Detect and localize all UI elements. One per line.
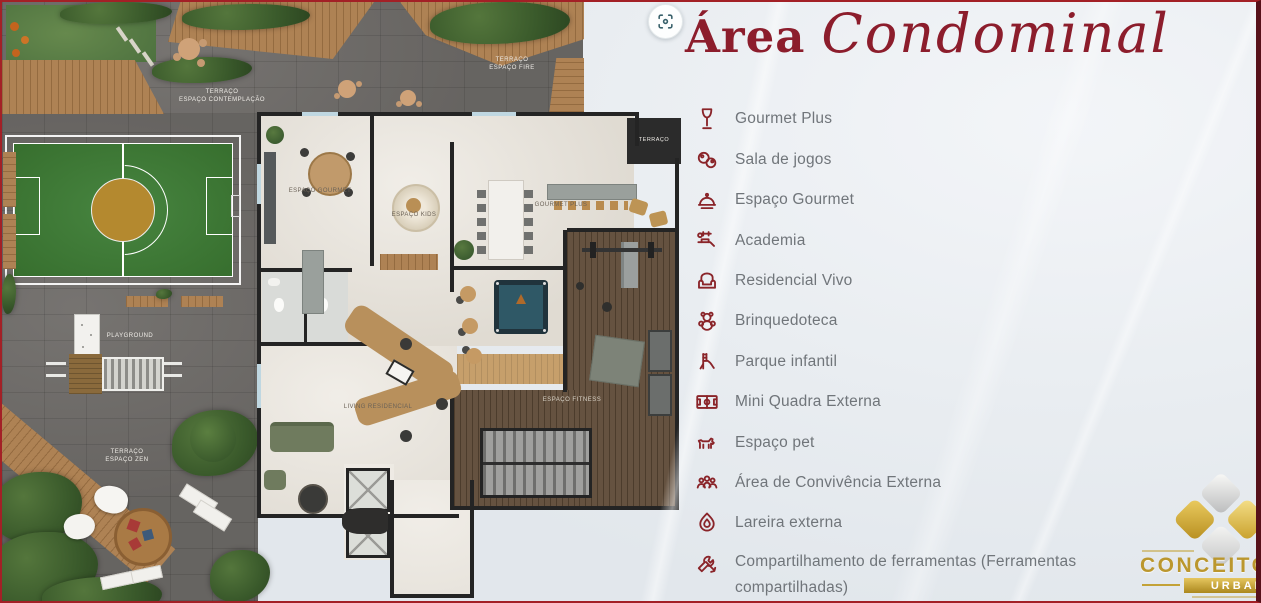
treadmill (648, 330, 672, 372)
window (257, 364, 261, 408)
amenity-academia: Academia (692, 220, 1172, 260)
court-goal-box-left (13, 177, 40, 235)
playground-rail (46, 362, 66, 365)
gym-equipment (602, 302, 612, 312)
wine-glass-icon (692, 105, 722, 133)
office-chair (400, 430, 412, 442)
living-armchair (264, 470, 286, 490)
gym-mat (589, 335, 645, 388)
amenity-espaco-gourmet: Espaço Gourmet (692, 180, 1172, 220)
plant (454, 240, 474, 260)
stairs (480, 428, 592, 498)
flame-icon (692, 509, 722, 537)
label-espaco-gourmet: ESPAÇO GOURMET (278, 188, 362, 194)
plant (266, 126, 284, 144)
teddy-bear-icon (692, 307, 722, 335)
zen-tree (190, 416, 236, 462)
playground-platform (69, 354, 102, 394)
window (472, 112, 516, 116)
wall (567, 228, 679, 232)
tools-icon (692, 549, 722, 577)
armchair (649, 210, 669, 228)
logo-subname: URBANO (1184, 578, 1261, 593)
chair (300, 148, 309, 157)
label-terraco: TERRAÇO (639, 137, 669, 144)
amenity-area-convivencia-externa: Área de Convivência Externa (692, 463, 1172, 503)
planter-left (3, 152, 16, 207)
conceito-urbano-logo: CONCEITO URBANO (1140, 484, 1261, 602)
billiard-balls-icon (692, 146, 722, 174)
billiard-dot (543, 282, 546, 285)
title-primary: Área (685, 10, 805, 63)
armchair-icon (692, 267, 722, 295)
patio-table (400, 90, 416, 106)
sink (268, 278, 280, 286)
office-chair (400, 338, 412, 350)
toilet (274, 298, 284, 312)
wall (390, 480, 394, 598)
title-script: Condominal (821, 2, 1169, 65)
bench (181, 296, 223, 307)
playground-rail (164, 374, 182, 377)
wall (470, 480, 474, 598)
treadmill (648, 374, 672, 416)
label-terrace-contemplation: TERRAÇOESPAÇO CONTEMPLAÇÃO (152, 88, 292, 104)
barbell-plate (590, 242, 596, 258)
slide-icon (692, 348, 722, 376)
wall (454, 506, 679, 510)
dining-chairs (477, 184, 486, 254)
page-frame: TERRAÇOESPAÇO CONTEMPLAÇÃO TERRAÇOESPAÇO… (0, 0, 1261, 603)
kids-table (406, 198, 421, 213)
kitchen-counter (264, 152, 276, 244)
chair (346, 152, 355, 161)
amenity-brinquedoteca: Brinquedoteca (692, 301, 1172, 341)
label-playground: PLAYGROUND (90, 332, 170, 340)
amenity-compartilhamento-ferramentas: Compartilhamento de ferramentas (Ferrame… (692, 543, 1172, 600)
amenity-parque-infantil: Parque infantil (692, 341, 1172, 381)
plan-pumpkin (12, 49, 20, 57)
amenities-list: Gourmet Plus Sala de jogos Espaço Gourme… (692, 99, 1172, 600)
piano (342, 508, 388, 534)
label-terrace-fire: TERRAÇOESPAÇO FIRE (468, 56, 556, 72)
label-living-residencial: LIVING RESIDENCIAL (328, 404, 428, 410)
playground-bridge (102, 357, 164, 391)
label-espaco-kids: ESPAÇO KIDS (382, 212, 446, 218)
dining-chairs (524, 184, 533, 254)
patio-table (338, 80, 356, 98)
wall (370, 114, 374, 266)
patio-table (178, 38, 200, 60)
label-espaco-fitness: ESPAÇO FITNESS (512, 396, 632, 404)
elevator (346, 468, 390, 512)
stairs-landing-line (483, 462, 589, 465)
logo-rule (1142, 550, 1194, 552)
gym-equipment (576, 282, 584, 290)
scan-button[interactable] (648, 4, 683, 39)
dog-icon (692, 428, 722, 456)
wall (563, 230, 567, 392)
coffee-table (298, 484, 328, 514)
kitchen-island (302, 250, 324, 314)
logo-name: CONCEITO (1140, 554, 1261, 578)
billiard-table (494, 280, 548, 334)
wall (260, 342, 372, 346)
wall (454, 266, 567, 270)
logo-rule (1142, 584, 1180, 586)
bar-counter (547, 184, 637, 200)
amenity-sala-de-jogos: Sala de jogos (692, 139, 1172, 179)
wall (675, 158, 679, 510)
game-chair (460, 286, 476, 302)
plan-pumpkin (21, 36, 29, 44)
zen-green (210, 550, 270, 602)
billiard-dot (496, 282, 499, 285)
sports-court-icon (692, 388, 722, 416)
wall (450, 390, 454, 510)
billiard-dot (543, 329, 546, 332)
barbell-plate (648, 242, 654, 258)
office-chair (436, 398, 448, 410)
long-dining-table (488, 180, 524, 260)
floor-plan: TERRAÇOESPAÇO CONTEMPLAÇÃO TERRAÇOESPAÇO… (2, 2, 692, 601)
amenity-lareira-externa: Lareira externa (692, 503, 1172, 543)
playground-rail (164, 362, 182, 365)
court-goal-right (231, 195, 240, 217)
amenity-mini-quadra-externa: Mini Quadra Externa (692, 382, 1172, 422)
amenity-espaco-pet: Espaço pet (692, 422, 1172, 462)
bench-press-icon (692, 226, 722, 254)
planter-left (3, 214, 16, 269)
mini-court (5, 135, 241, 285)
billiard-dot (496, 329, 499, 332)
plan-pumpkin (10, 22, 19, 31)
living-sofa (270, 422, 334, 452)
court-goal-box-right (206, 177, 233, 235)
amenity-gourmet-plus: Gourmet Plus (692, 99, 1172, 139)
logo-rule (1192, 596, 1261, 598)
game-chair (466, 348, 482, 364)
label-terrace-zen: TERRAÇOESPAÇO ZEN (82, 448, 172, 464)
window (257, 164, 261, 204)
wall (635, 112, 639, 146)
kids-bench (380, 254, 438, 270)
playground-rail (46, 374, 66, 377)
page-title: ÁreaCondominal (685, 2, 1170, 65)
wall (390, 594, 474, 598)
people-icon (692, 469, 722, 497)
focus-scan-icon (656, 12, 675, 31)
label-gourmet-plus: GOURMET PLUS (520, 202, 602, 208)
game-chair (462, 318, 478, 334)
window (302, 112, 338, 116)
billiard-felt (499, 285, 543, 329)
cloche-icon (692, 186, 722, 214)
amenity-residencial-vivo: Residencial Vivo (692, 261, 1172, 301)
